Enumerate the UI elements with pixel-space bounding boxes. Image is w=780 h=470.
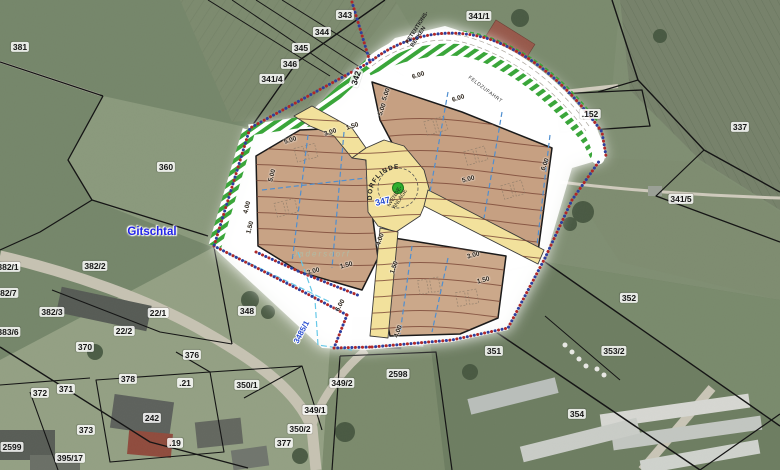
lot-south bbox=[380, 238, 506, 336]
map-viewport[interactable]: RETENTIONS- BECKEN FELDZUFAHRT DORFLINDE… bbox=[0, 0, 780, 470]
aerial-map-canvas: RETENTIONS- BECKEN FELDZUFAHRT DORFLINDE… bbox=[0, 0, 780, 470]
